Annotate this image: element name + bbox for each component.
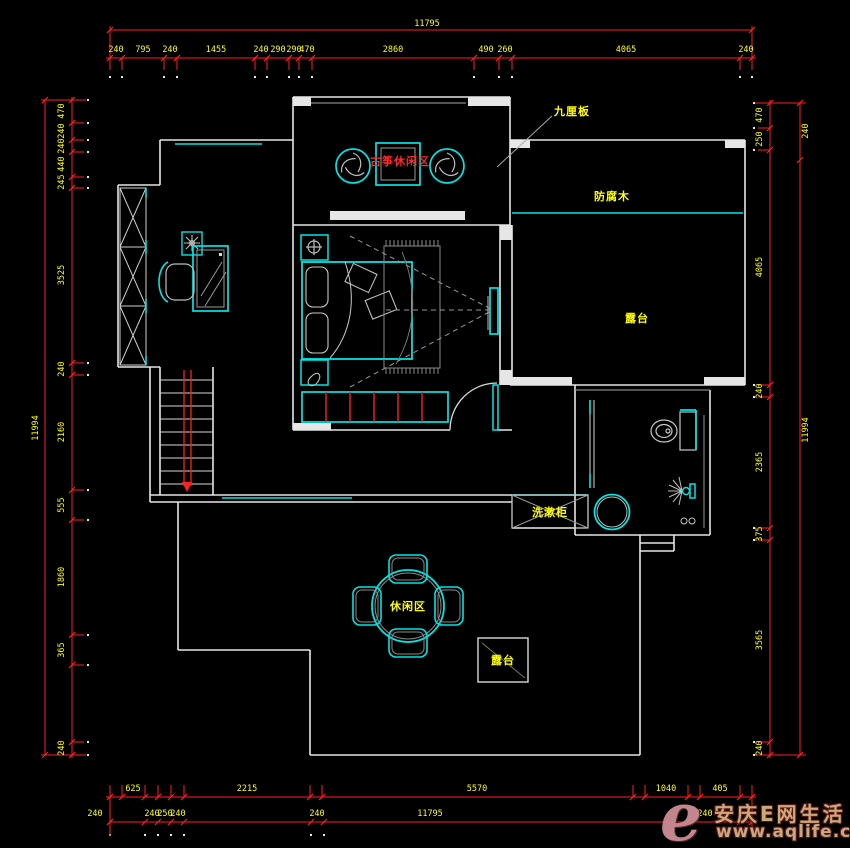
- extension-dot: [109, 76, 111, 78]
- washstand: [512, 495, 630, 530]
- extension-dot: [87, 99, 89, 101]
- windows: [175, 144, 743, 498]
- extension-dot: [176, 76, 178, 78]
- nightstand-bottom: [301, 360, 328, 386]
- watermark: e 安庆E网生活 www.aqlife.com: [658, 792, 850, 848]
- extension-dot: [87, 634, 89, 636]
- wall-left-room: [118, 140, 293, 367]
- dim-label: 240: [108, 45, 123, 55]
- small-terrace-square: [478, 638, 528, 682]
- dim-label: 4065: [755, 257, 765, 277]
- dim-label: 240: [170, 809, 185, 819]
- extension-dot: [144, 834, 146, 836]
- dim-label: 470: [755, 107, 765, 122]
- extension-dot: [310, 834, 312, 836]
- dim-label: 290: [270, 45, 285, 55]
- bathroom-door-panel: [590, 400, 594, 488]
- dim-label: 11795: [414, 19, 440, 29]
- floor-plan-drawing: 1179524079524014552402902904702860490260…: [0, 0, 850, 848]
- wall-stairwell: [150, 367, 213, 495]
- fan-swirl-right: [430, 149, 464, 183]
- basin: [595, 495, 630, 530]
- dim-label: 490: [478, 45, 493, 55]
- extension-dot: [87, 176, 89, 178]
- dim-label: 240: [57, 740, 67, 755]
- stairs-arrow: [182, 482, 192, 492]
- desk-chair: [159, 262, 194, 302]
- extension-dot: [157, 834, 159, 836]
- cabinet-red-dividers: [302, 392, 448, 422]
- dim-label: 250: [755, 131, 765, 146]
- sight-lines-dashed: [350, 236, 491, 387]
- dim-label: 240: [755, 383, 765, 398]
- dim-label: 11994: [801, 417, 811, 443]
- dim-label: 245: [57, 174, 67, 189]
- dim-label: 470: [57, 103, 67, 118]
- extension-dot: [87, 519, 89, 521]
- extension-dot: [739, 76, 741, 78]
- extension-dot: [183, 834, 185, 836]
- dim-label: 4065: [616, 45, 636, 55]
- dim-label: 260: [497, 45, 512, 55]
- cad-floorplan-screenshot: 1179524079524014552402902904702860490260…: [0, 0, 850, 848]
- extension-dot: [87, 754, 89, 756]
- dim-label: 440: [57, 156, 67, 171]
- dim-label: 1860: [57, 567, 67, 587]
- dim-label: 240: [57, 123, 67, 138]
- dim-label: 3525: [57, 265, 67, 285]
- toilet: [651, 410, 696, 450]
- stairs-rail-red: [184, 370, 191, 486]
- extension-dot: [87, 741, 89, 743]
- guzheng-table: [376, 143, 420, 185]
- dim-label: 240: [87, 809, 102, 819]
- dim-label: 240: [57, 138, 67, 153]
- dim-label: 2365: [755, 452, 765, 472]
- dim-label: 555: [57, 497, 67, 512]
- watermark-site-url: www.aqlife.com: [716, 822, 850, 842]
- dim-label: 11994: [31, 415, 41, 441]
- floor-drains: [681, 518, 695, 524]
- extension-dot: [254, 76, 256, 78]
- stairs: [160, 370, 213, 492]
- dim-label: 240: [162, 45, 177, 55]
- dim-label: 240: [309, 809, 324, 819]
- dim-label: 240: [801, 123, 811, 138]
- extension-dot: [323, 834, 325, 836]
- extension-dot: [751, 76, 753, 78]
- dim-label: 2215: [237, 784, 257, 794]
- dim-label: 795: [135, 45, 150, 55]
- annotation-leader-line: [497, 116, 552, 167]
- extension-dot: [298, 76, 300, 78]
- extension-dot: [87, 122, 89, 124]
- walls: [118, 97, 745, 755]
- dim-label: 1455: [206, 45, 226, 55]
- dim-label: 2860: [383, 45, 403, 55]
- desk-lamp: [182, 232, 202, 255]
- extension-dot: [87, 664, 89, 666]
- wall-right-terrace: [510, 140, 745, 385]
- extension-dot: [87, 362, 89, 364]
- extension-dot: [311, 76, 313, 78]
- dimension-layer: 1179524079524014552402902904702860490260…: [31, 19, 811, 836]
- wardrobe-hatch: [120, 188, 146, 365]
- dim-label: 3565: [755, 630, 765, 650]
- extension-dot: [170, 834, 172, 836]
- extension-dot: [87, 139, 89, 141]
- dim-label: 240: [755, 740, 765, 755]
- dim-label: 2160: [57, 422, 67, 442]
- dim-label: 240: [253, 45, 268, 55]
- extension-dot: [121, 76, 123, 78]
- extension-dot: [753, 102, 755, 104]
- tv-on-wall: [488, 288, 498, 334]
- extension-dot: [87, 374, 89, 376]
- dim-label: 375: [755, 526, 765, 541]
- dim-label: 11795: [417, 809, 443, 819]
- dim-label: 365: [57, 642, 67, 657]
- dim-label: 470: [299, 45, 314, 55]
- shower-head: [668, 477, 695, 505]
- watermark-logo-e: e: [660, 778, 702, 848]
- wall-top-room: [293, 97, 510, 225]
- extension-dot: [87, 489, 89, 491]
- dim-label: 625: [125, 784, 140, 794]
- fan-swirl-left: [336, 149, 370, 183]
- terrace-steps: [512, 528, 674, 551]
- extension-dot: [163, 76, 165, 78]
- dim-label: 240: [738, 45, 753, 55]
- bedroom-door: [450, 383, 498, 430]
- extension-dot: [87, 187, 89, 189]
- extension-dot: [87, 151, 89, 153]
- extension-dot: [753, 127, 755, 129]
- extension-dot: [753, 149, 755, 151]
- extension-dot: [511, 76, 513, 78]
- round-table-set: [353, 555, 463, 657]
- nightstand-top: [301, 235, 328, 260]
- extension-dot: [288, 76, 290, 78]
- extension-dot: [473, 76, 475, 78]
- dim-label: 5570: [467, 784, 487, 794]
- extension-dot: [266, 76, 268, 78]
- extension-dot: [498, 76, 500, 78]
- desk: [193, 246, 228, 311]
- dim-label: 240: [57, 361, 67, 376]
